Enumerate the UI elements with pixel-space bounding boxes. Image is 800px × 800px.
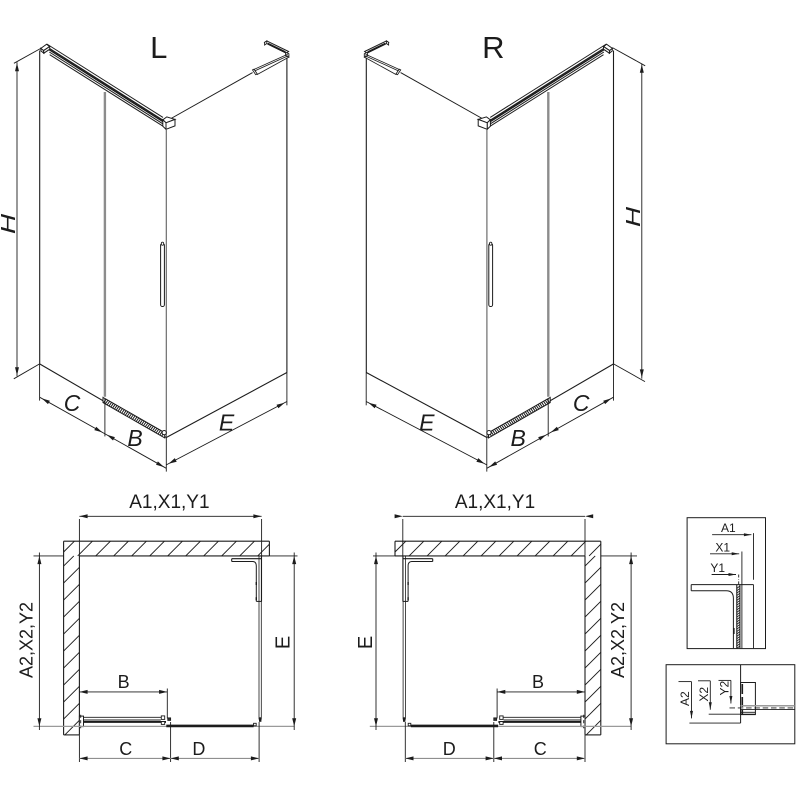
svg-text:C: C xyxy=(573,390,590,416)
svg-text:D: D xyxy=(192,739,205,759)
svg-text:R: R xyxy=(482,30,504,65)
svg-text:C: C xyxy=(64,390,81,416)
svg-text:A2,X2,Y2: A2,X2,Y2 xyxy=(17,602,37,678)
svg-text:E: E xyxy=(355,636,377,649)
svg-text:H: H xyxy=(0,213,20,234)
svg-text:L: L xyxy=(150,30,167,65)
svg-text:H: H xyxy=(623,206,645,227)
svg-text:A2: A2 xyxy=(678,691,692,706)
svg-text:B: B xyxy=(118,672,130,692)
svg-text:B: B xyxy=(532,672,544,692)
svg-text:B: B xyxy=(127,425,142,451)
svg-text:A1,X1,Y1: A1,X1,Y1 xyxy=(455,492,535,513)
svg-text:Y1: Y1 xyxy=(710,561,725,575)
svg-text:C: C xyxy=(119,739,132,759)
svg-text:C: C xyxy=(534,739,547,759)
svg-text:X2: X2 xyxy=(697,687,711,702)
svg-text:A2,X2,Y2: A2,X2,Y2 xyxy=(608,602,628,678)
svg-text:A1,X1,Y1: A1,X1,Y1 xyxy=(129,492,209,513)
svg-text:X1: X1 xyxy=(715,540,730,554)
svg-text:E: E xyxy=(273,636,295,649)
svg-text:D: D xyxy=(443,739,456,759)
svg-text:A1: A1 xyxy=(721,521,736,535)
svg-text:E: E xyxy=(419,410,435,436)
svg-text:Y2: Y2 xyxy=(717,681,731,696)
svg-text:B: B xyxy=(511,425,526,451)
svg-text:E: E xyxy=(219,410,235,436)
